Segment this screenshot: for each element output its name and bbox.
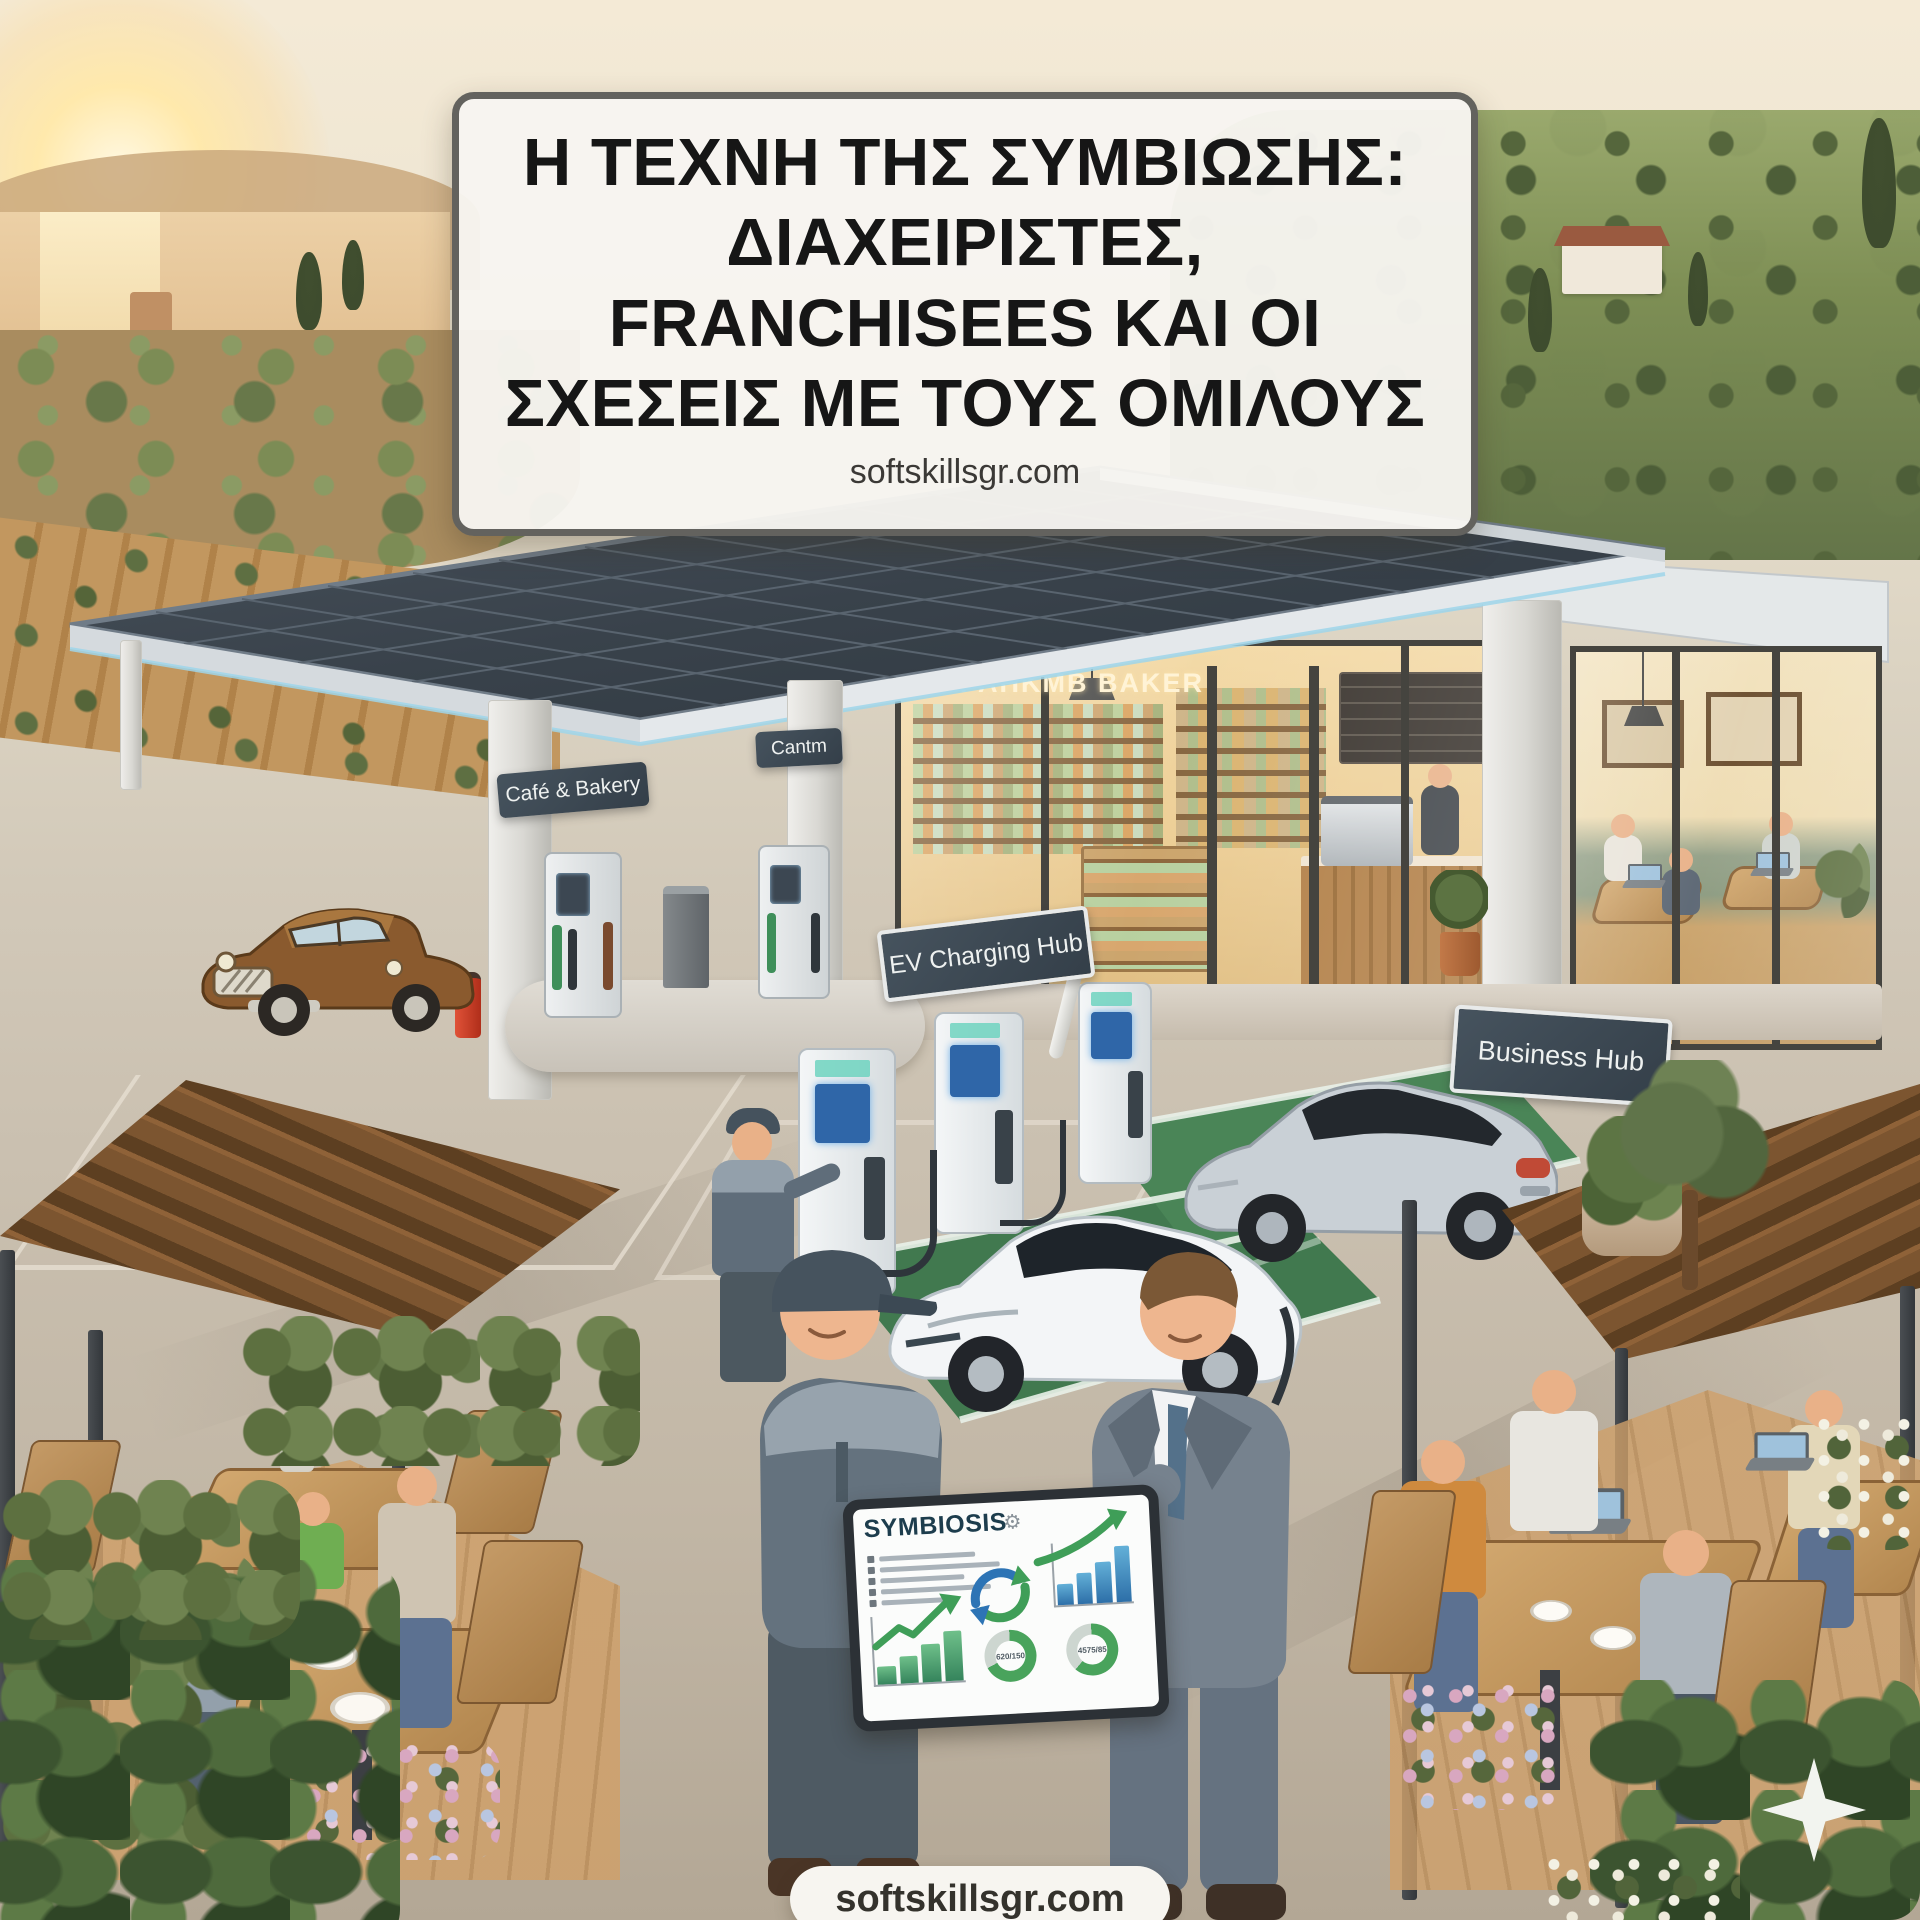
cypress-tree [342,240,364,310]
mother-legs [392,1618,452,1728]
tablet-screen: SYMBIOSIS ⚙ [853,1494,1160,1721]
coffee-cup [1530,1600,1572,1622]
ev-charging-hub-sign-label: EV Charging Hub [888,928,1085,980]
indoor-plant [1812,838,1870,918]
title-banner: Η ΤΕΧΝΗ ΤΗΣ ΣΥΜΒΙΩΣΗΣ: ΔΙΑΧΕΙΡΙΣΤΕΣ, FRA… [452,92,1478,536]
fuel-pump [758,845,830,999]
flower-bed [1810,1410,1920,1550]
symbiosis-tablet: SYMBIOSIS ⚙ [842,1484,1170,1732]
fuel-pump [544,852,622,1018]
coffee-cup [1590,1626,1636,1650]
olive-tree [1600,1060,1780,1290]
tablet-donut-chart: 620/150 [983,1629,1038,1684]
villa-house [1562,240,1662,294]
donut-value: 620/150 [996,1651,1025,1662]
trash-bin [663,886,709,988]
villa-roof [1554,226,1670,246]
canopy-pillar [120,640,142,790]
gear-icon: ⚙ [1003,1509,1022,1535]
foreground-bushes-left-top [0,1480,300,1640]
building-base-curb [882,984,1882,1040]
sea [0,212,450,344]
trend-arrow-icon [1029,1507,1132,1568]
canteen-sign: Cantm [755,728,843,768]
laptop [1748,1432,1812,1474]
flower-bed [1540,1850,1740,1920]
tablet-title: SYMBIOSIS [863,1508,1008,1544]
pergola-left-roof [0,1080,620,1340]
olive-tree-trunk [1682,1190,1698,1290]
title-line-1: Η ΤΕΧΝΗ ΤΗΣ ΣΥΜΒΙΩΣΗΣ: [459,123,1471,203]
canteen-sign-label: Cantm [770,736,827,761]
classic-brown-car [188,872,488,1062]
donut-value: 4575/85 [1078,1644,1107,1655]
poster-illustration: PAHKMB BAKER [0,0,1920,1920]
banner-website: softskillsgr.com [459,453,1471,492]
title-line-4: ΣΧΕΣΕΙΣ ΜΕ ΤΟΥΣ ΟΜΙΛΟΥΣ [459,364,1471,444]
technician-head [732,1122,772,1164]
flower-bed [1396,1680,1566,1810]
planter-hedge [240,1316,640,1466]
ev-charger [1078,982,1152,1184]
footer-website: softskillsgr.com [835,1878,1124,1920]
footer-website-pill: softskillsgr.com [790,1866,1170,1920]
trend-arrow-icon [867,1588,974,1653]
tablet-donut-chart: 4575/85 [1065,1622,1120,1677]
title-line-3: FRANCHISEES ΚΑΙ ΟΙ [459,284,1471,364]
title-line-2: ΔΙΑΧΕΙΡΙΣΤΕΣ, [459,203,1471,283]
cafe-bakery-sign-label: Café & Bakery [505,772,642,808]
meeting-man-white-shirt [1510,1370,1598,1531]
